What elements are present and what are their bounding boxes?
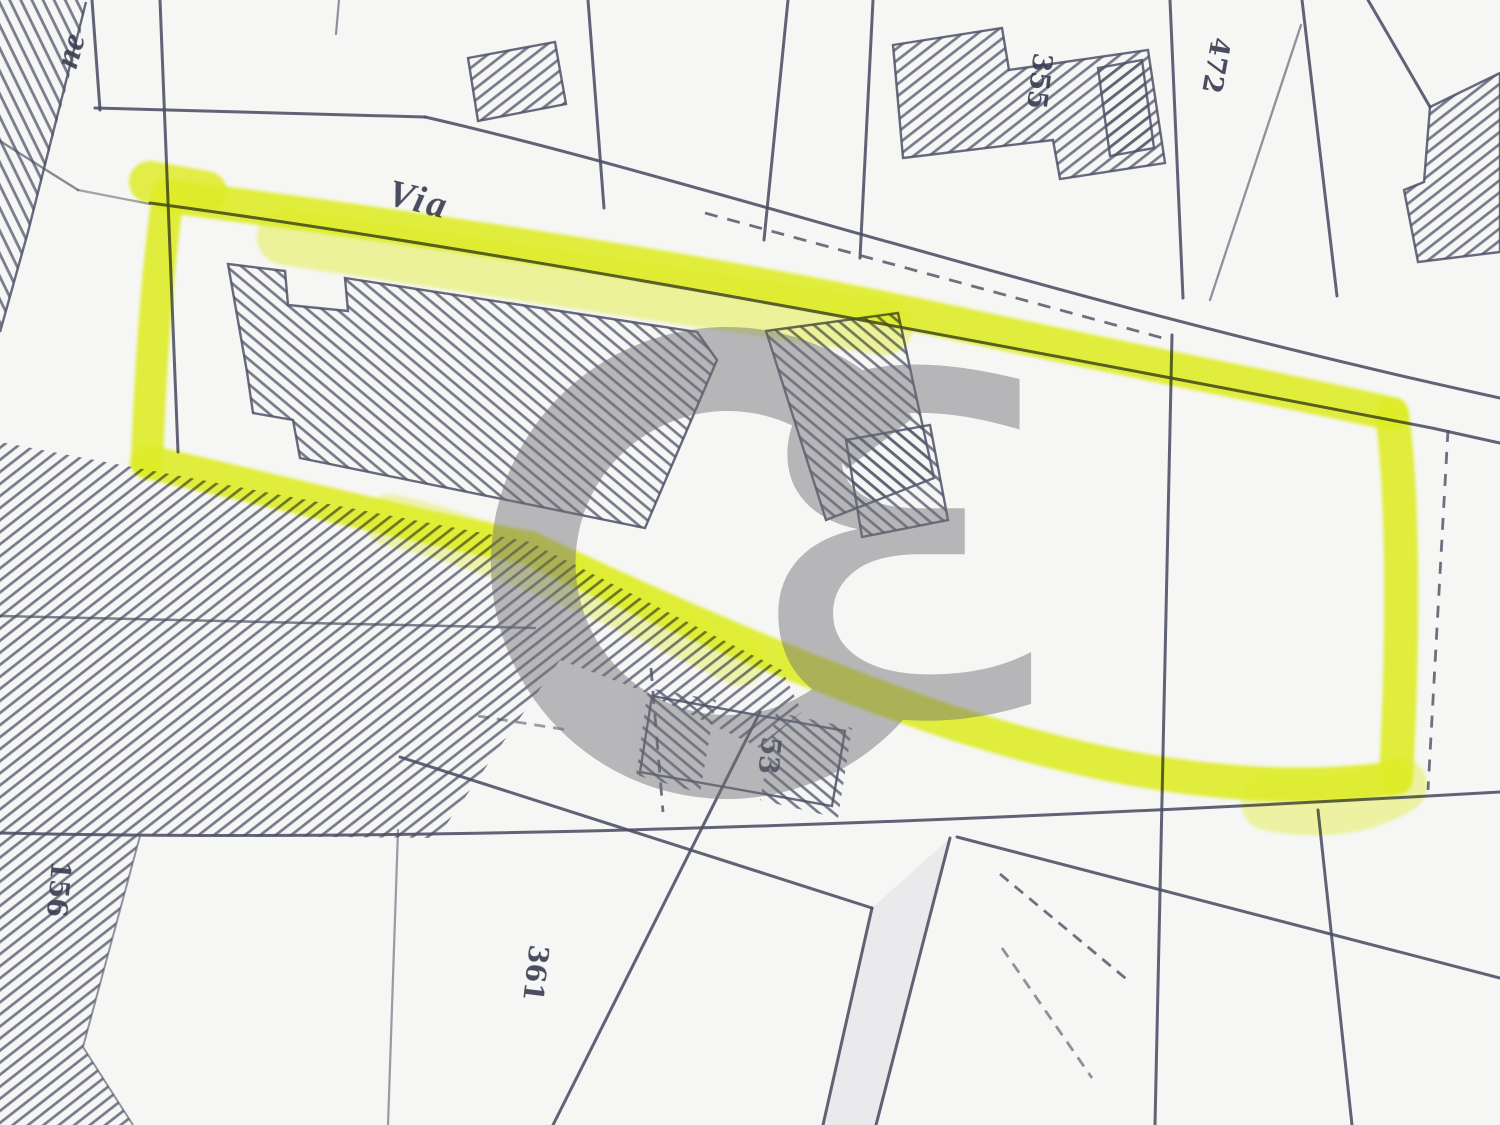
map-canvas: Via ne 355 472 156 53 361 ɛ (0, 0, 1500, 1125)
cadastral-map-scan: Via ne 355 472 156 53 361 ɛ (0, 0, 1500, 1125)
watermark-letter-epsilon: ɛ (738, 138, 1073, 859)
